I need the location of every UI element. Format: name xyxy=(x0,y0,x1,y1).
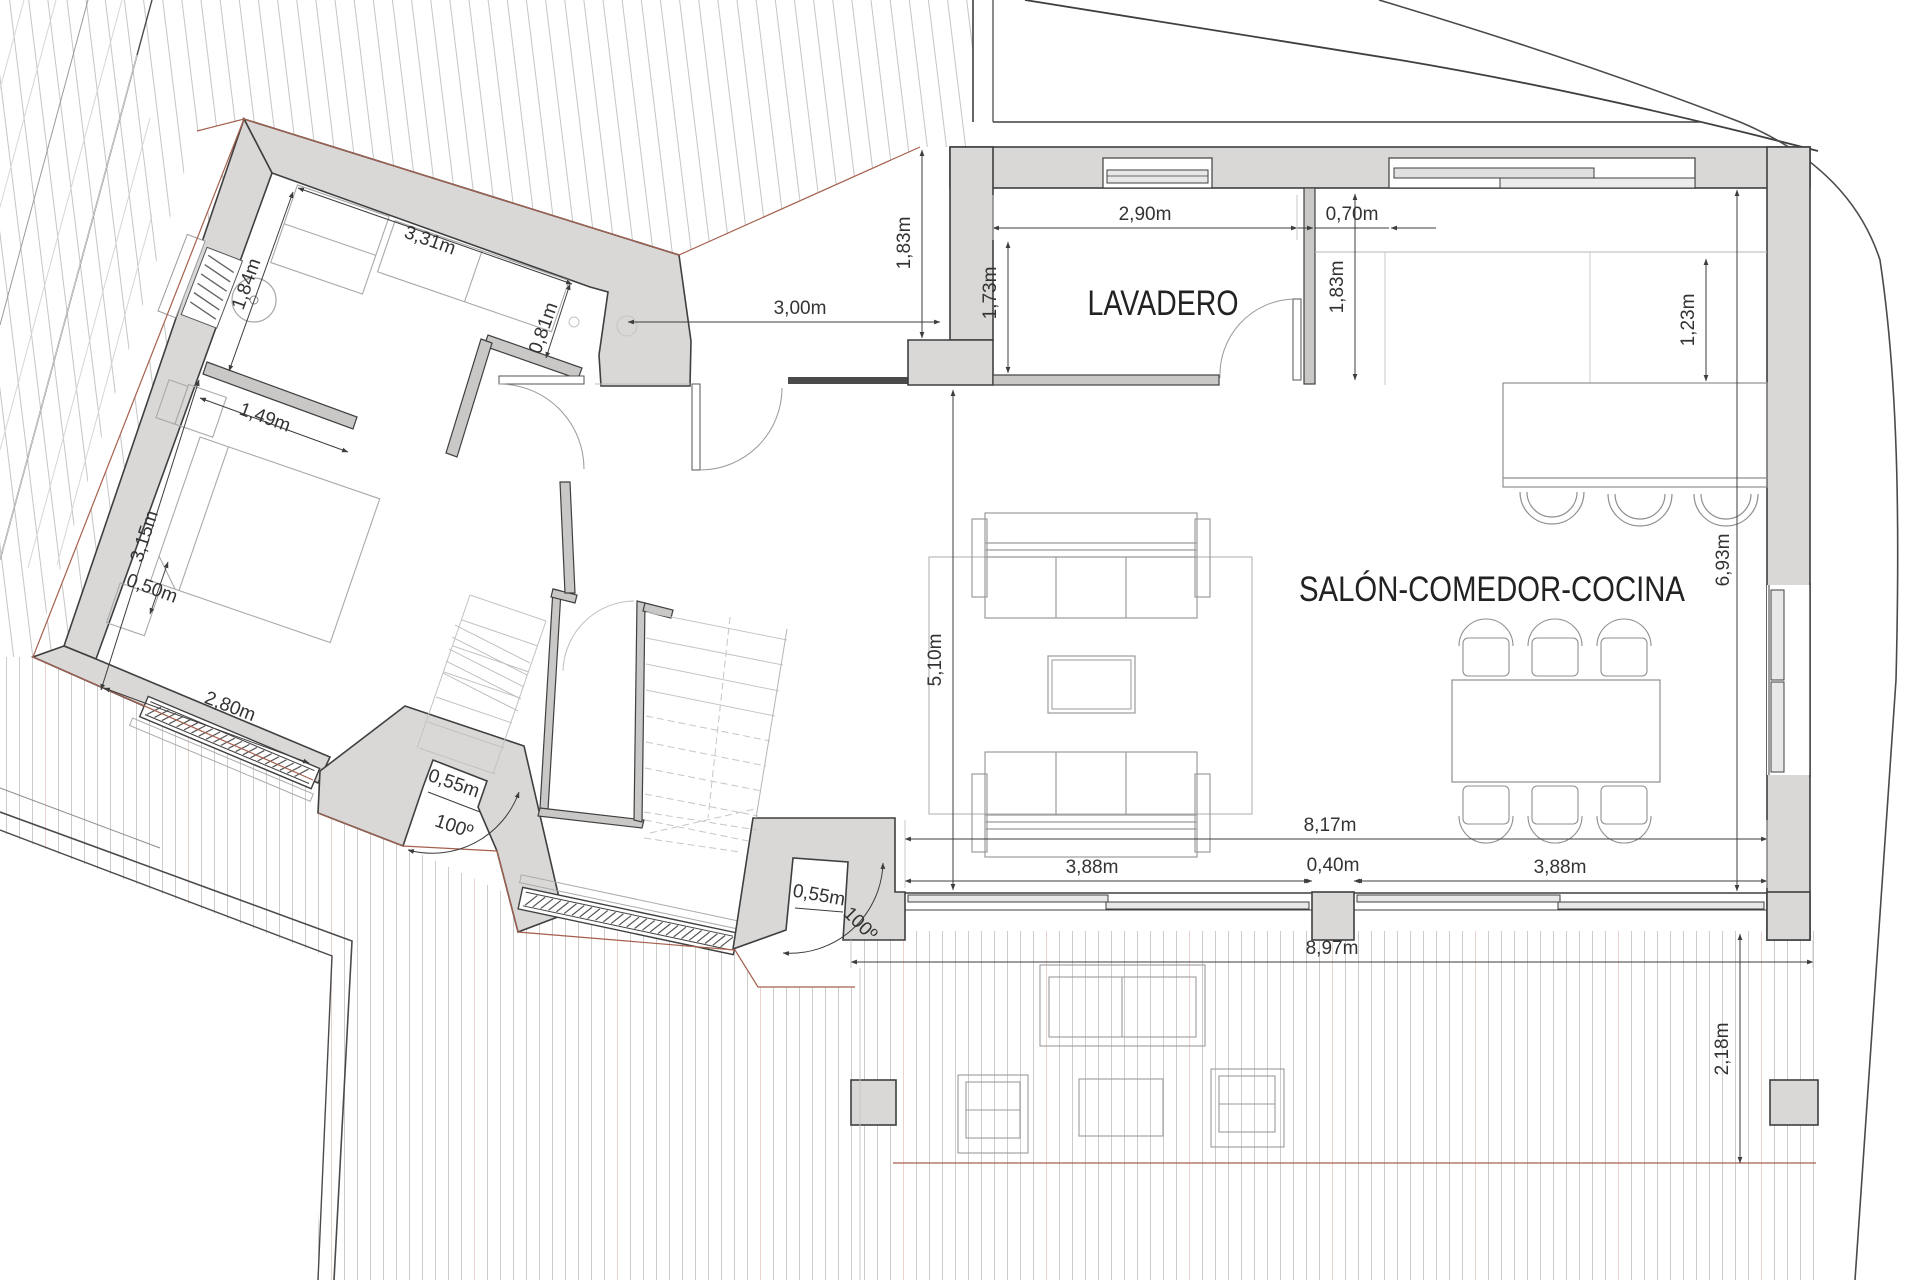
svg-text:5,10m: 5,10m xyxy=(925,634,946,687)
svg-text:0,40m: 0,40m xyxy=(1307,855,1360,876)
svg-text:6,93m: 6,93m xyxy=(1713,534,1734,587)
svg-text:1,23m: 1,23m xyxy=(1678,294,1699,347)
svg-text:0,70m: 0,70m xyxy=(1326,204,1379,225)
svg-text:2,18m: 2,18m xyxy=(1712,1023,1733,1076)
svg-text:LAVADERO: LAVADERO xyxy=(1088,284,1239,323)
svg-text:2,90m: 2,90m xyxy=(1119,204,1172,225)
svg-text:3,88m: 3,88m xyxy=(1066,857,1119,878)
svg-text:SALÓN-COMEDOR-COCINA: SALÓN-COMEDOR-COCINA xyxy=(1299,570,1686,609)
svg-text:3,00m: 3,00m xyxy=(774,298,827,319)
svg-text:1,83m: 1,83m xyxy=(894,217,915,270)
svg-text:1,73m: 1,73m xyxy=(980,267,1001,320)
svg-text:1,83m: 1,83m xyxy=(1327,261,1348,314)
svg-text:8,97m: 8,97m xyxy=(1306,938,1359,959)
svg-text:8,17m: 8,17m xyxy=(1304,815,1357,836)
svg-text:3,88m: 3,88m xyxy=(1534,857,1587,878)
